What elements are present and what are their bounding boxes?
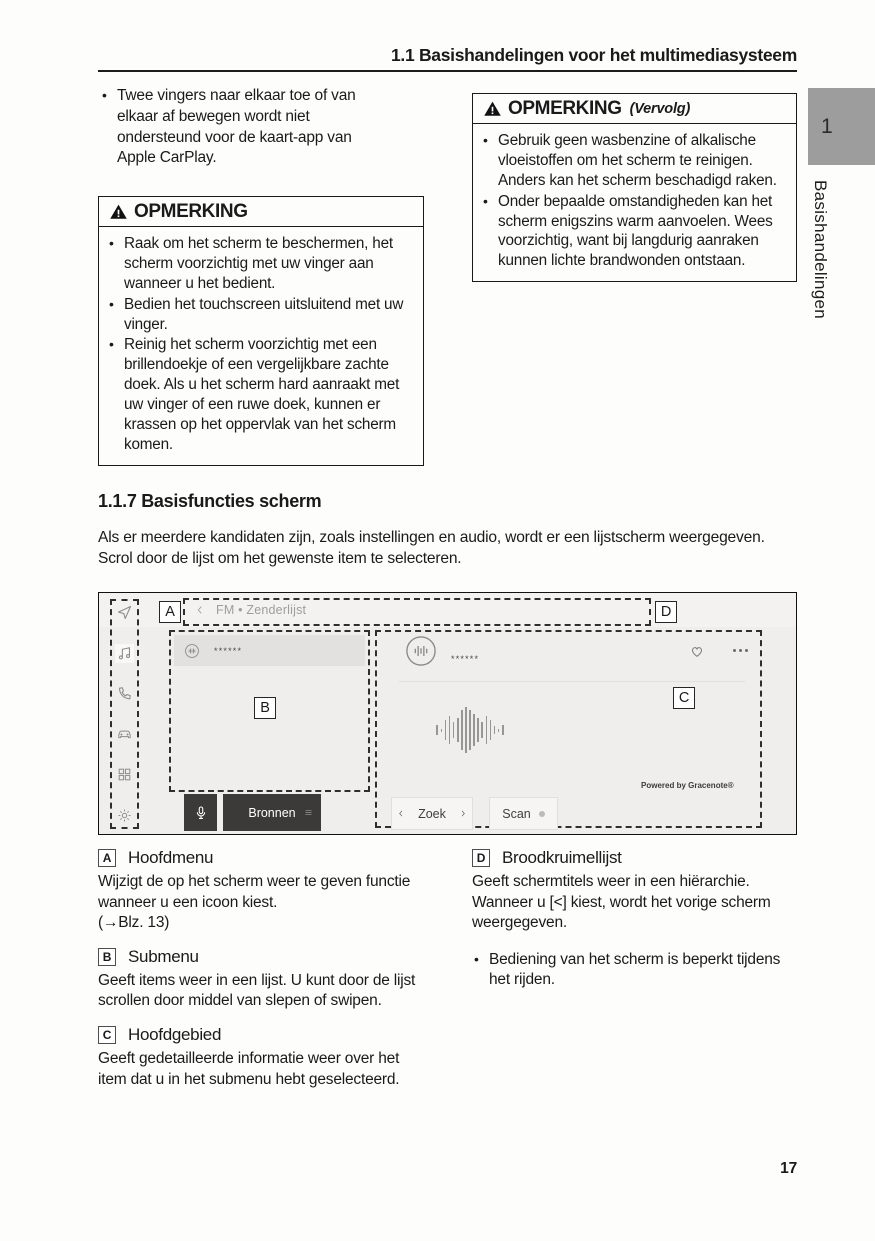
radio-station-icon xyxy=(403,633,439,669)
submenu-selected-row[interactable]: ****** xyxy=(174,635,365,666)
legend-body-a: Wijzigt de op het scherm weer te geven f… xyxy=(98,872,423,913)
legend-body-c: Geeft gedetailleerde informatie weer ove… xyxy=(98,1049,423,1090)
legend-key-a: A xyxy=(98,849,116,867)
legend-right-column: D Broodkruimellijst Geeft schermtitels w… xyxy=(472,848,804,991)
list-icon xyxy=(304,808,313,817)
notice-left-bullet: Reinig het scherm voorzichtig met een br… xyxy=(107,335,415,454)
notice-left-header: OPMERKING xyxy=(99,197,423,227)
seek-button-label: Zoek xyxy=(418,807,446,821)
legend-title-b: Submenu xyxy=(128,947,199,967)
apps-grid-icon[interactable] xyxy=(115,765,134,784)
notice-right-header: OPMERKING (Vervolg) xyxy=(473,94,796,124)
page-number: 17 xyxy=(780,1160,797,1178)
seek-button[interactable]: Zoek xyxy=(391,797,473,830)
chevron-right-icon[interactable] xyxy=(459,808,467,819)
legend-item-a: A Hoofdmenu Wijzigt de op het scherm wee… xyxy=(98,848,430,934)
scan-button-label: Scan xyxy=(502,807,531,821)
notice-right-continuation: (Vervolg) xyxy=(630,101,691,117)
phone-icon[interactable] xyxy=(115,684,134,703)
music-icon[interactable] xyxy=(115,644,134,663)
legend-item-b: B Submenu Geeft items weer in een lijst.… xyxy=(98,947,430,1012)
callout-label-a: A xyxy=(159,601,181,623)
notice-right-title: OPMERKING xyxy=(508,98,622,120)
screen-sidebar xyxy=(112,603,137,825)
warning-triangle-icon xyxy=(483,100,502,118)
legend-key-c: C xyxy=(98,1026,116,1044)
powered-by-gracenote: Powered by Gracenote® xyxy=(641,781,734,790)
notice-box-left: OPMERKING Raak om het scherm te bescherm… xyxy=(98,196,424,466)
notice-left-bullet: Bedien het touchscreen uitsluitend met u… xyxy=(107,295,415,335)
notice-right-bullet: Onder bepaalde omstandigheden kan het sc… xyxy=(481,192,788,272)
legend-left-column: A Hoofdmenu Wijzigt de op het scherm wee… xyxy=(98,848,430,1103)
chapter-side-label: Basishandelingen xyxy=(810,180,830,350)
main-area-header: ****** xyxy=(403,633,745,679)
microphone-icon xyxy=(193,805,209,821)
notice-left-bullet: Raak om het scherm te beschermen, het sc… xyxy=(107,234,415,294)
callout-label-c: C xyxy=(673,687,695,709)
callout-label-b: B xyxy=(254,697,276,719)
header-rule xyxy=(98,70,797,72)
chapter-tab: 1 xyxy=(808,88,875,165)
legend-item-c: C Hoofdgebied Geeft gedetailleerde infor… xyxy=(98,1025,430,1090)
submenu-item-text: ****** xyxy=(214,646,242,656)
section-heading: 1.1.7 Basisfuncties scherm xyxy=(98,491,321,512)
page-header-title: 1.1 Basishandelingen voor het multimedia… xyxy=(391,45,797,66)
driving-restriction-note: Bediening van het scherm is beperkt tijd… xyxy=(472,950,792,991)
navigation-icon[interactable] xyxy=(115,603,134,622)
section-intro: Als er meerdere kandidaten zijn, zoals i… xyxy=(98,527,766,569)
breadcrumb-text: FM • Zenderlijst xyxy=(216,603,306,617)
chevron-left-icon[interactable] xyxy=(195,603,205,617)
callout-label-d: D xyxy=(655,601,677,623)
sources-button[interactable]: Bronnen xyxy=(223,794,321,831)
notice-right-bullet: Gebruik geen wasbenzine of alkalische vl… xyxy=(481,131,788,191)
scan-status-dot xyxy=(539,811,545,817)
radio-station-icon xyxy=(183,642,201,660)
legend-title-c: Hoofdgebied xyxy=(128,1025,221,1045)
legend-item-d: D Broodkruimellijst Geeft schermtitels w… xyxy=(472,848,804,934)
more-menu-icon[interactable] xyxy=(733,649,748,652)
chevron-left-icon[interactable] xyxy=(397,808,405,819)
main-area-separator xyxy=(399,681,745,682)
legend-body-d: Geeft schermtitels weer in een hiërarchi… xyxy=(472,872,797,934)
notice-left-title: OPMERKING xyxy=(134,201,248,223)
sources-button-label: Bronnen xyxy=(248,806,295,820)
scan-button[interactable]: Scan xyxy=(489,797,558,830)
settings-icon[interactable] xyxy=(115,806,134,825)
legend-page-ref: (→Blz. 13) xyxy=(98,913,430,934)
notice-box-right: OPMERKING (Vervolg) Gebruik geen wasbenz… xyxy=(472,93,797,282)
chapter-number: 1 xyxy=(821,115,832,139)
legend-key-b: B xyxy=(98,948,116,966)
microphone-button[interactable] xyxy=(184,794,217,831)
heart-icon[interactable] xyxy=(689,643,705,664)
main-item-text: ****** xyxy=(451,654,479,664)
warning-triangle-icon xyxy=(109,203,128,221)
intro-bullet: Twee vingers naar elkaar toe of van elka… xyxy=(100,86,390,169)
multimedia-screenshot: FM • Zenderlijst A D B C ****** ****** P… xyxy=(98,592,797,835)
legend-title-a: Hoofdmenu xyxy=(128,848,213,868)
legend-title-d: Broodkruimellijst xyxy=(502,848,622,868)
car-icon[interactable] xyxy=(115,725,134,744)
waveform xyxy=(433,703,507,757)
legend-body-b: Geeft items weer in een lijst. U kunt do… xyxy=(98,971,423,1012)
legend-key-d: D xyxy=(472,849,490,867)
